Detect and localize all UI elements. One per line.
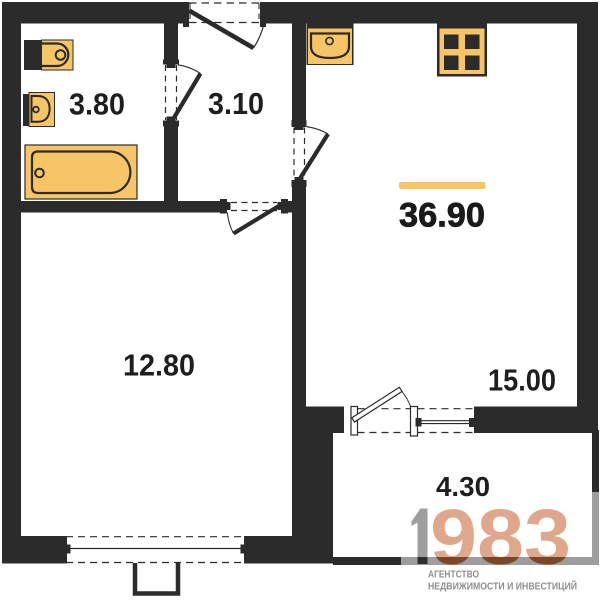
svg-text:12.80: 12.80 [123,348,195,383]
svg-text:983: 983 [430,493,571,581]
svg-text:3.80: 3.80 [69,87,125,122]
svg-text:36.90: 36.90 [399,197,485,235]
svg-text:НЕДВИЖИМОСТИ И ИНВЕСТИЦИЙ: НЕДВИЖИМОСТИ И ИНВЕСТИЦИЙ [428,580,577,593]
svg-text:АГЕНТСТВО: АГЕНТСТВО [428,569,479,581]
svg-text:3.10: 3.10 [208,86,264,121]
svg-text:15.00: 15.00 [488,363,556,398]
